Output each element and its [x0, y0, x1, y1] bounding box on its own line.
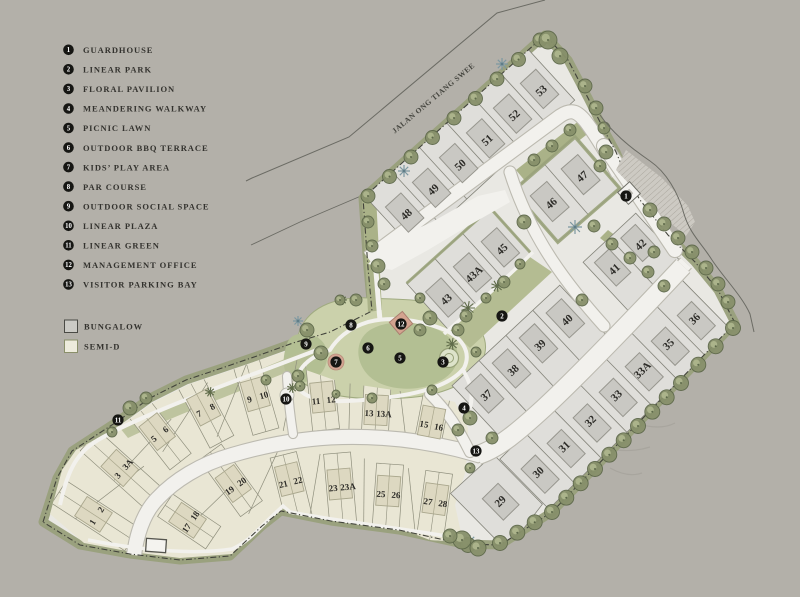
svg-text:11: 11 [65, 243, 72, 250]
svg-text:9: 9 [67, 204, 71, 211]
svg-text:13: 13 [364, 408, 374, 418]
svg-text:10: 10 [65, 223, 72, 230]
svg-text:PICNIC LAWN: PICNIC LAWN [83, 123, 151, 133]
svg-text:2: 2 [500, 312, 504, 320]
svg-text:LINEAR GREEN: LINEAR GREEN [83, 241, 160, 251]
svg-text:7: 7 [334, 358, 338, 366]
svg-text:10: 10 [283, 395, 291, 403]
svg-text:11: 11 [311, 396, 321, 407]
svg-text:11: 11 [115, 416, 122, 424]
svg-text:1: 1 [624, 192, 628, 200]
svg-text:SEMI-D: SEMI-D [84, 342, 120, 352]
svg-text:13A: 13A [376, 409, 393, 420]
svg-text:LINEAR PLAZA: LINEAR PLAZA [83, 221, 158, 231]
svg-text:26: 26 [391, 490, 401, 501]
svg-text:2: 2 [67, 67, 71, 74]
svg-text:PAR COURSE: PAR COURSE [83, 182, 147, 192]
svg-text:12: 12 [65, 262, 72, 269]
svg-text:KIDS’ PLAY AREA: KIDS’ PLAY AREA [83, 162, 170, 172]
svg-text:OUTDOOR BBQ TERRACE: OUTDOOR BBQ TERRACE [83, 143, 209, 153]
svg-text:4: 4 [67, 106, 71, 113]
svg-text:5: 5 [67, 125, 71, 132]
svg-text:23A: 23A [340, 481, 357, 492]
svg-text:13: 13 [65, 282, 72, 289]
svg-text:9: 9 [304, 340, 308, 348]
svg-text:MANAGEMENT OFFICE: MANAGEMENT OFFICE [83, 260, 197, 270]
svg-text:4: 4 [462, 404, 466, 412]
svg-text:8: 8 [349, 321, 353, 329]
svg-text:OUTDOOR SOCIAL SPACE: OUTDOOR SOCIAL SPACE [83, 201, 210, 211]
svg-text:1: 1 [67, 47, 71, 54]
svg-text:8: 8 [67, 184, 71, 191]
svg-text:FLORAL PAVILION: FLORAL PAVILION [83, 84, 175, 94]
svg-text:MEANDERING WALKWAY: MEANDERING WALKWAY [83, 104, 207, 114]
svg-text:3: 3 [67, 86, 71, 93]
svg-text:6: 6 [366, 344, 370, 352]
svg-text:13: 13 [473, 447, 481, 455]
svg-text:23: 23 [328, 483, 338, 494]
svg-text:BUNGALOW: BUNGALOW [84, 322, 143, 332]
svg-text:GUARDHOUSE: GUARDHOUSE [83, 45, 153, 55]
svg-text:VISITOR PARKING BAY: VISITOR PARKING BAY [83, 280, 198, 290]
svg-text:12: 12 [398, 320, 406, 328]
svg-text:3: 3 [441, 358, 445, 366]
svg-text:7: 7 [67, 164, 71, 171]
svg-text:25: 25 [376, 489, 386, 500]
svg-text:LINEAR PARK: LINEAR PARK [83, 65, 152, 75]
svg-text:6: 6 [67, 145, 71, 152]
svg-text:5: 5 [398, 354, 402, 362]
